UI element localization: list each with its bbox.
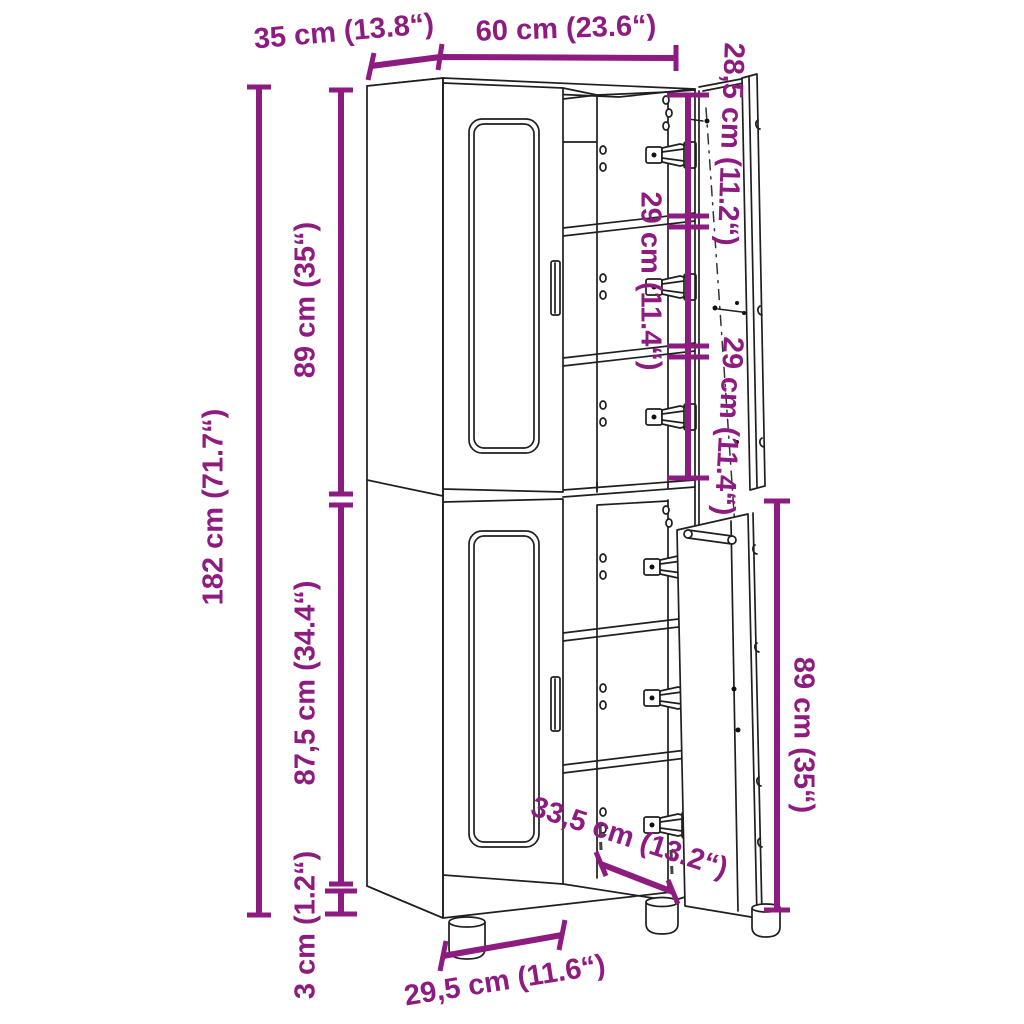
- dim-label-top-compartment: 28,5 cm (11.2“): [711, 42, 750, 246]
- shelf-peg-holes: [600, 506, 672, 833]
- upper-left-door: [443, 83, 563, 492]
- dim-label-lower-door: 89 cm (35“): [787, 657, 819, 813]
- dim-line-upper-section: [329, 90, 353, 494]
- dim-label-depth: 35 cm (13.8“): [253, 8, 436, 56]
- dim-line-feet-height: [325, 891, 357, 914]
- dim-line-lower-section: [329, 505, 353, 884]
- dim-line-lower-door: [764, 501, 790, 910]
- dim-line-total-height: [247, 87, 271, 915]
- dim-label-width: 60 cm (23.6“): [475, 10, 657, 48]
- cabinet-side-panel: [367, 78, 443, 918]
- dim-label-feet-height: 3 cm (1.2“): [290, 851, 322, 999]
- dim-label-upper-section: 89 cm (35“): [290, 222, 322, 378]
- mid-divider: [563, 480, 695, 497]
- dim-label-lower-section: 87,5 cm (34.4“): [290, 581, 322, 786]
- dim-label-low-compartment: 29 cm (11.4“): [708, 336, 749, 516]
- cabinet-dimension-diagram: 35 cm (13.8“) 60 cm (23.6“) 28,5 cm (11.…: [0, 0, 1024, 1024]
- dim-line-depth-width: [368, 44, 676, 80]
- dim-label-base-width: 29,5 cm (11.6“): [402, 949, 608, 1012]
- door-handle: [551, 677, 560, 731]
- diagram-canvas: 35 cm (13.8“) 60 cm (23.6“) 28,5 cm (11.…: [0, 0, 1024, 1024]
- dim-label-mid-compartment: 29 cm (11.4“): [634, 192, 666, 371]
- door-handle: [551, 261, 560, 315]
- lower-shelf-2: [563, 749, 695, 773]
- dim-label-total-height: 182 cm (71.7“): [198, 409, 230, 606]
- lower-shelf-1: [563, 617, 695, 641]
